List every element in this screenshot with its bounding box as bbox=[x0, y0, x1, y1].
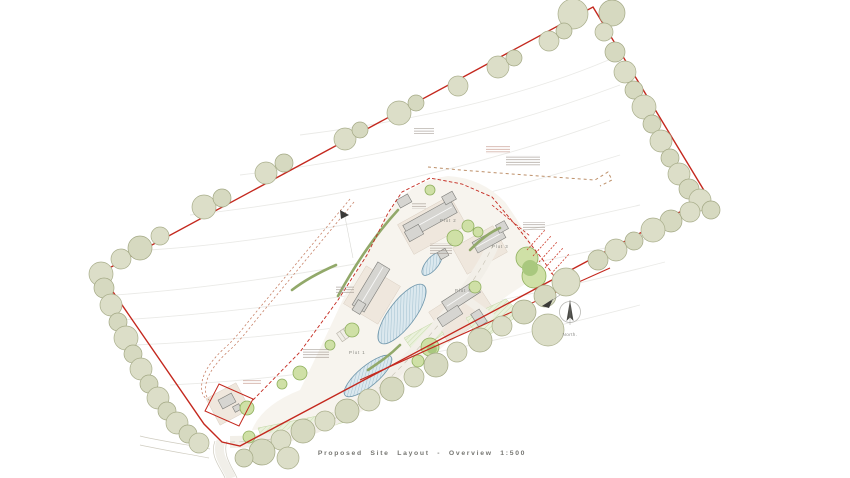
plot-2-label: Plot 2 bbox=[440, 218, 457, 223]
site-plan-drawing: Plot 1 Plot 2 Plot 3 Plot 4 North. Propo… bbox=[0, 0, 850, 478]
track-arrow-icon bbox=[340, 210, 353, 258]
drawing-title: Proposed Site Layout - Overview 1:500 bbox=[318, 450, 526, 457]
plot-3-label: Plot 3 bbox=[492, 244, 509, 249]
north-arrow: North. bbox=[560, 300, 581, 337]
site-plan-sheet: Plot 1 Plot 2 Plot 3 Plot 4 North. Propo… bbox=[0, 0, 850, 478]
north-label: North. bbox=[563, 332, 578, 337]
plot-1-label: Plot 1 bbox=[349, 350, 366, 355]
plot-4-label: Plot 4 bbox=[455, 288, 472, 293]
